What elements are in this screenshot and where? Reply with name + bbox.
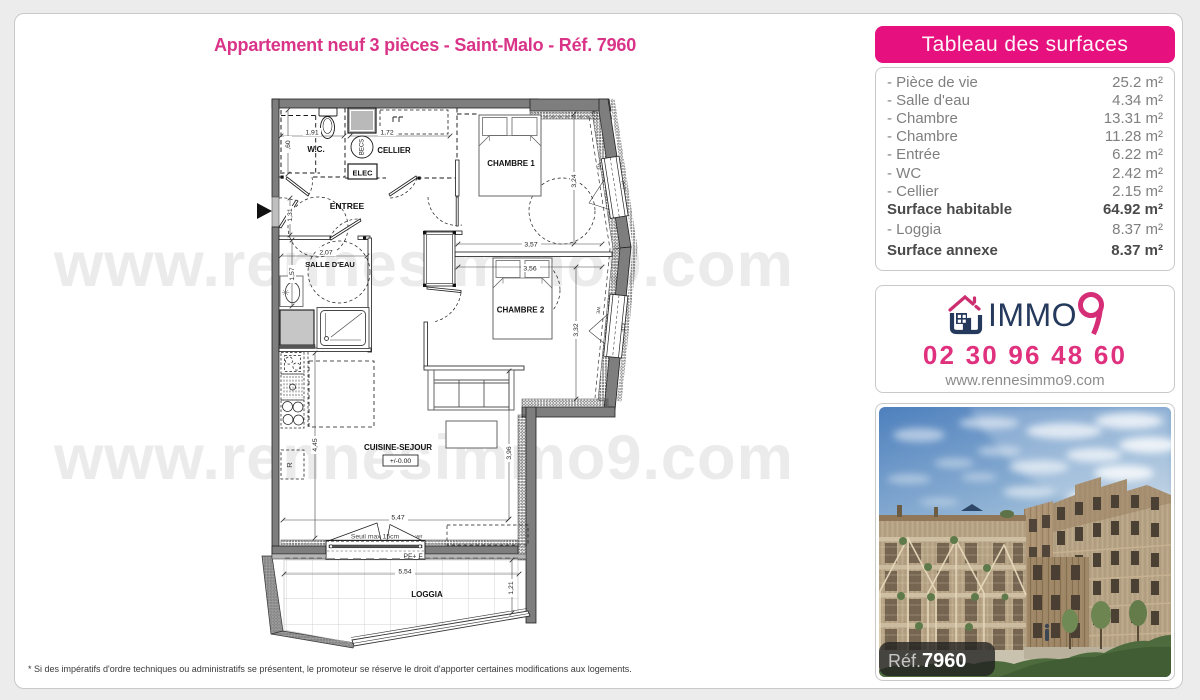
- svg-text:1,31: 1,31: [287, 208, 294, 221]
- svg-text:+/-0.00: +/-0.00: [390, 458, 412, 465]
- svg-text:ELEC: ELEC: [352, 169, 373, 178]
- svg-text:A+F: A+F: [619, 322, 626, 332]
- svg-text:7960: 7960: [922, 650, 967, 672]
- svg-text:1,21: 1,21: [508, 581, 515, 594]
- svg-text:3,57: 3,57: [524, 242, 537, 249]
- svg-text:CELLIER: CELLIER: [377, 146, 411, 155]
- svg-text:3,24: 3,24: [571, 174, 578, 187]
- svg-text:3,32: 3,32: [573, 323, 580, 336]
- svg-text:2,07: 2,07: [319, 250, 332, 257]
- svg-text:CUISINE-SEJOUR: CUISINE-SEJOUR: [364, 443, 432, 452]
- svg-text:BECS: BECS: [360, 139, 366, 155]
- svg-text:R: R: [285, 462, 294, 468]
- svg-text:ver: ver: [416, 534, 423, 540]
- svg-text:1,72: 1,72: [380, 130, 393, 137]
- svg-text:3,56: 3,56: [523, 266, 536, 273]
- svg-text:ENTREE: ENTREE: [330, 201, 365, 211]
- svg-text:Réf.: Réf.: [888, 651, 921, 671]
- svg-text:SALLE D'EAU: SALLE D'EAU: [305, 260, 355, 269]
- svg-text:4,45: 4,45: [312, 438, 319, 451]
- svg-text:LOGGIA: LOGGIA: [411, 590, 443, 599]
- svg-text:WE: WE: [596, 306, 602, 314]
- svg-text:W.C.: W.C.: [307, 145, 324, 154]
- svg-text:3,96: 3,96: [506, 446, 513, 459]
- svg-text:CHAMBRE 2: CHAMBRE 2: [497, 306, 545, 315]
- svg-text:1,57: 1,57: [289, 267, 296, 280]
- svg-text:1,91: 1,91: [305, 130, 318, 137]
- svg-text:,60: ,60: [285, 140, 292, 150]
- svg-text:5,47: 5,47: [391, 515, 404, 522]
- svg-text:WE: WE: [596, 163, 602, 171]
- svg-text:5,54: 5,54: [398, 569, 411, 576]
- svg-text:Seuil max 15cm: Seuil max 15cm: [351, 534, 400, 541]
- svg-text:CHAMBRE 1: CHAMBRE 1: [487, 159, 535, 168]
